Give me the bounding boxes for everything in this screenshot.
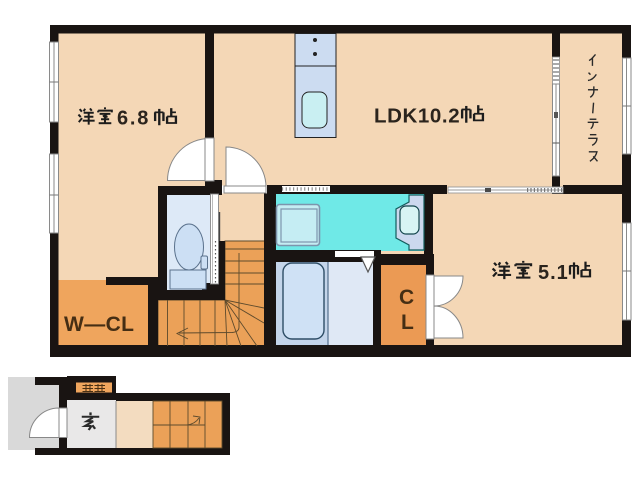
svg-text:5.1: 5.1 xyxy=(538,262,569,284)
svg-text:6.8: 6.8 xyxy=(117,108,150,130)
svg-text:LDK10.2: LDK10.2 xyxy=(374,105,460,128)
svg-text:L: L xyxy=(401,311,414,334)
svg-text:W—CL: W—CL xyxy=(64,313,134,336)
svg-text:C: C xyxy=(399,286,414,309)
